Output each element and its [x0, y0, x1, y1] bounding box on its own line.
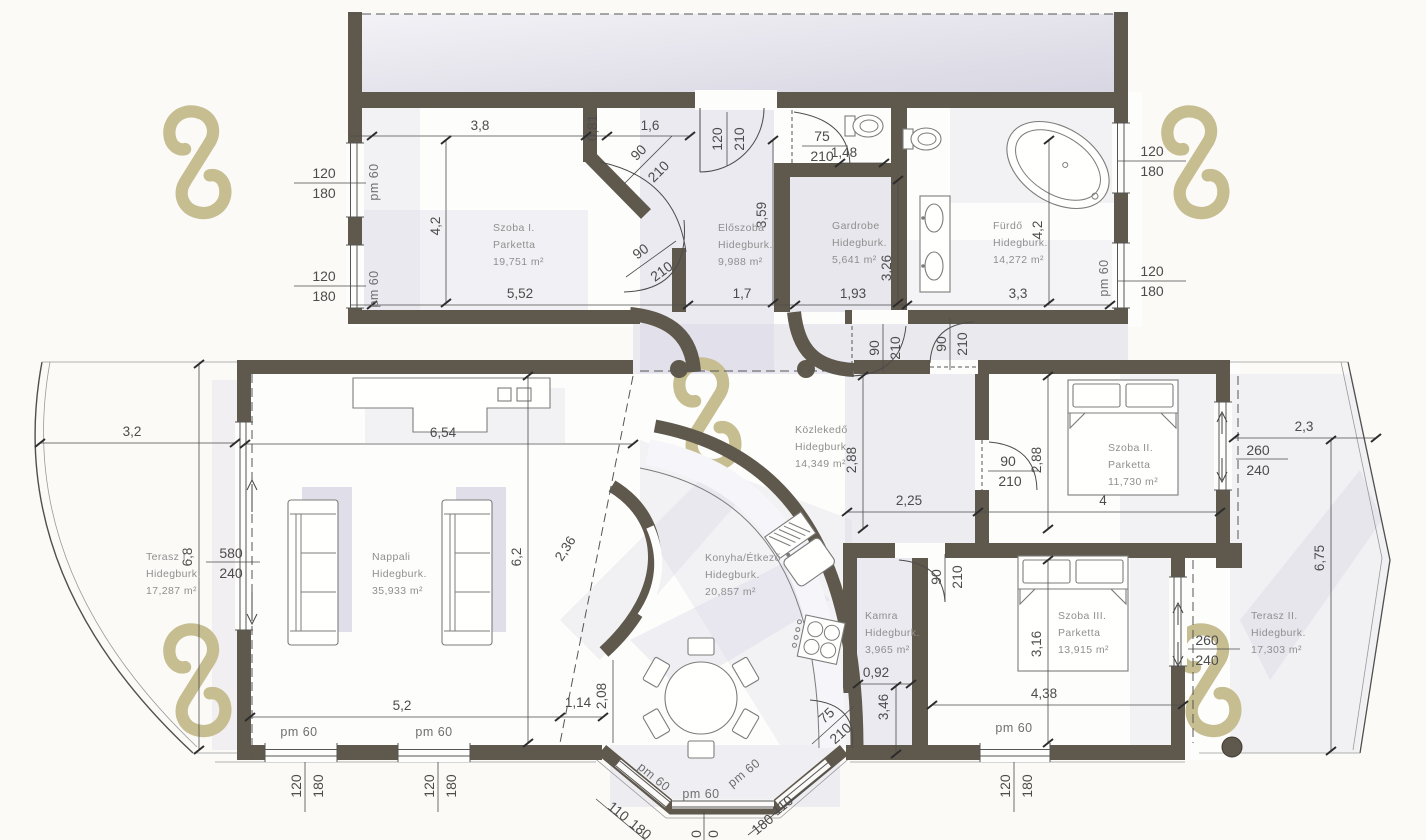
room-finish: Hidegburk.	[795, 441, 850, 453]
window-size-180: 180	[1019, 774, 1035, 798]
dim-6-75: 6,75	[1312, 545, 1327, 571]
dim-2-88: 2,88	[1029, 447, 1044, 473]
cutoff-size-digit: 0	[688, 830, 704, 838]
logo-watermark	[1167, 111, 1223, 213]
room-area: 17,303 m²	[1251, 644, 1302, 656]
door-size-210: 210	[887, 336, 903, 360]
door-size-210: 210	[949, 565, 965, 589]
dim-2-88: 2,88	[844, 447, 859, 473]
dim-3-26: 3,26	[879, 255, 894, 281]
dim-3-8: 3,8	[471, 118, 490, 133]
dim-2-3: 2,3	[1295, 419, 1314, 434]
hall-column	[670, 360, 688, 378]
room-finish: Hidegburk.	[372, 568, 427, 580]
room-name: Konyha/Étkező	[705, 551, 781, 564]
room-name: Fürdő	[993, 220, 1022, 232]
window-size-180: 180	[1140, 283, 1164, 299]
window-size-120: 120	[1140, 143, 1164, 159]
dim-6-54: 6,54	[430, 425, 457, 440]
dim-4: 4	[1099, 493, 1107, 508]
slider-size-580: 580	[219, 545, 243, 561]
room-name: Szoba I.	[493, 222, 535, 234]
parapet-label: pm 60	[367, 163, 381, 200]
room-finish: Hidegburk.	[146, 568, 201, 580]
window-120-180	[346, 143, 364, 217]
room-area: 5,641 m²	[832, 254, 877, 266]
cabinet-box	[498, 388, 511, 401]
room-finish: Hidegburk.	[832, 237, 887, 249]
dim-5-52: 5,52	[507, 286, 533, 301]
dim-1-14: 1,14	[565, 695, 592, 710]
window-120-180	[346, 245, 364, 308]
window-120-180	[1112, 123, 1130, 193]
room-finish: Hidegburk.	[718, 239, 773, 251]
window-size-120: 120	[288, 774, 304, 798]
window-size-120: 120	[312, 165, 336, 181]
door-size-210: 210	[954, 332, 970, 356]
vanity-sinks	[920, 196, 950, 292]
door-size-75: 75	[814, 128, 830, 144]
room-name: Nappali	[372, 551, 410, 563]
parapet-label: pm 60	[415, 725, 452, 739]
bay-window-size-180: 180	[748, 811, 776, 838]
window-size-180: 180	[312, 288, 336, 304]
dim-1-48: 1,48	[831, 145, 857, 160]
dim-2-08: 2,08	[594, 683, 609, 709]
room-area: 13,915 m²	[1058, 644, 1109, 656]
floor-plan-drawing: Szoba I. Parketta 19,751 m² Előszoba Hid…	[0, 0, 1426, 840]
parapet-label: pm 60	[367, 270, 381, 307]
dim-6-2: 6,2	[509, 548, 524, 567]
dim-1-93: 1,93	[840, 286, 866, 301]
dim-5-2: 5,2	[393, 698, 412, 713]
toilet	[903, 128, 941, 150]
window-size-120: 120	[997, 774, 1013, 798]
door-size-120: 120	[709, 127, 725, 151]
cutoff-size-digit: 0	[705, 830, 721, 838]
parapet-label: pm 60	[280, 725, 317, 739]
room-finish: Hidegburk.	[705, 569, 760, 581]
dim-3-59: 3,59	[754, 202, 769, 228]
floor-plan-stage: Szoba I. Parketta 19,751 m² Előszoba Hid…	[0, 0, 1426, 840]
sofa	[442, 500, 492, 645]
dim-3-46: 3,46	[876, 694, 891, 720]
door-size-90: 90	[1000, 453, 1016, 469]
window-120-180	[265, 743, 337, 762]
window-size-180: 180	[443, 774, 459, 798]
slider-size-240: 240	[219, 565, 243, 581]
door-size-90: 90	[933, 336, 949, 352]
room-name: Közlekedő	[795, 424, 848, 436]
sofa	[288, 500, 338, 645]
porch-floor	[362, 14, 1114, 92]
dim-4-2: 4,2	[1030, 221, 1045, 240]
window-size-120: 120	[421, 774, 437, 798]
slider-size-240: 240	[1195, 652, 1219, 668]
window-size-180: 180	[312, 185, 336, 201]
room-finish: Hidegburk.	[1251, 627, 1306, 639]
toilet	[845, 115, 883, 137]
room-name: Szoba III.	[1058, 610, 1106, 622]
slider-size-260: 260	[1246, 442, 1270, 458]
room-area: 19,751 m²	[493, 256, 544, 268]
dim-4-38: 4,38	[1031, 686, 1057, 701]
window-size-120: 120	[312, 268, 336, 284]
room-name: Gardrobe	[832, 220, 880, 232]
cabinet-box	[517, 388, 531, 401]
room-label-terasz2: Terasz II. Hidegburk. 17,303 m²	[1251, 610, 1306, 656]
room-name: Terasz II.	[1251, 610, 1298, 622]
room-name: Kamra	[865, 610, 898, 622]
window-size-180: 180	[1140, 163, 1164, 179]
window-120-180	[1112, 243, 1130, 308]
door-size-210: 210	[731, 127, 747, 151]
room-area: 35,933 m²	[372, 585, 423, 597]
door-size-210: 210	[810, 148, 834, 164]
hall-column	[797, 360, 815, 378]
room-area: 14,349 m²	[795, 458, 846, 470]
logo-watermark	[169, 111, 225, 213]
terrace-column	[1222, 737, 1242, 757]
dim-3-16: 3,16	[1029, 631, 1044, 657]
door-size-210: 210	[998, 473, 1022, 489]
parapet-label: pm 60	[682, 787, 719, 801]
room-name: Szoba II.	[1108, 442, 1153, 454]
room-area: 11,730 m²	[1108, 476, 1158, 488]
bay-window-size-180: 180	[627, 816, 655, 840]
room-area: 14,272 m²	[993, 254, 1044, 266]
slider-size-240: 240	[1246, 462, 1270, 478]
parapet-label: pm 60	[995, 721, 1032, 735]
parapet-label: pm 60	[1097, 259, 1111, 296]
window-size-180: 180	[310, 774, 326, 798]
dim-1-7: 1,7	[733, 286, 752, 301]
dim-0-92: 0,92	[863, 665, 889, 680]
room-finish: Parketta	[1108, 459, 1150, 471]
room-finish: Parketta	[493, 239, 535, 251]
door-size-90: 90	[928, 569, 944, 585]
room-label-kozlekedo: Közlekedő Hidegburk. 14,349 m²	[795, 424, 850, 470]
dim-3-2: 3,2	[123, 424, 142, 439]
window-120-180	[398, 743, 470, 762]
dim-6-8: 6,8	[180, 548, 195, 567]
room-area: 17,287 m²	[146, 585, 197, 597]
window-120-180	[980, 743, 1050, 762]
room-finish: Parketta	[1058, 627, 1100, 639]
window-size-120: 120	[1140, 263, 1164, 279]
dim-3-3: 3,3	[1009, 286, 1028, 301]
dim-2-25: 2,25	[896, 493, 922, 508]
slider-size-260: 260	[1195, 632, 1219, 648]
dim-1-6: 1,6	[641, 118, 660, 133]
room-area: 3,965 m²	[865, 644, 910, 656]
dim-0-81: 0,81	[585, 115, 600, 141]
room-area: 20,857 m²	[705, 586, 756, 598]
dim-4-2: 4,2	[428, 217, 443, 236]
room-area: 9,988 m²	[718, 256, 763, 268]
room-finish: Hidegburk.	[865, 627, 920, 639]
door-size-90: 90	[866, 340, 882, 356]
